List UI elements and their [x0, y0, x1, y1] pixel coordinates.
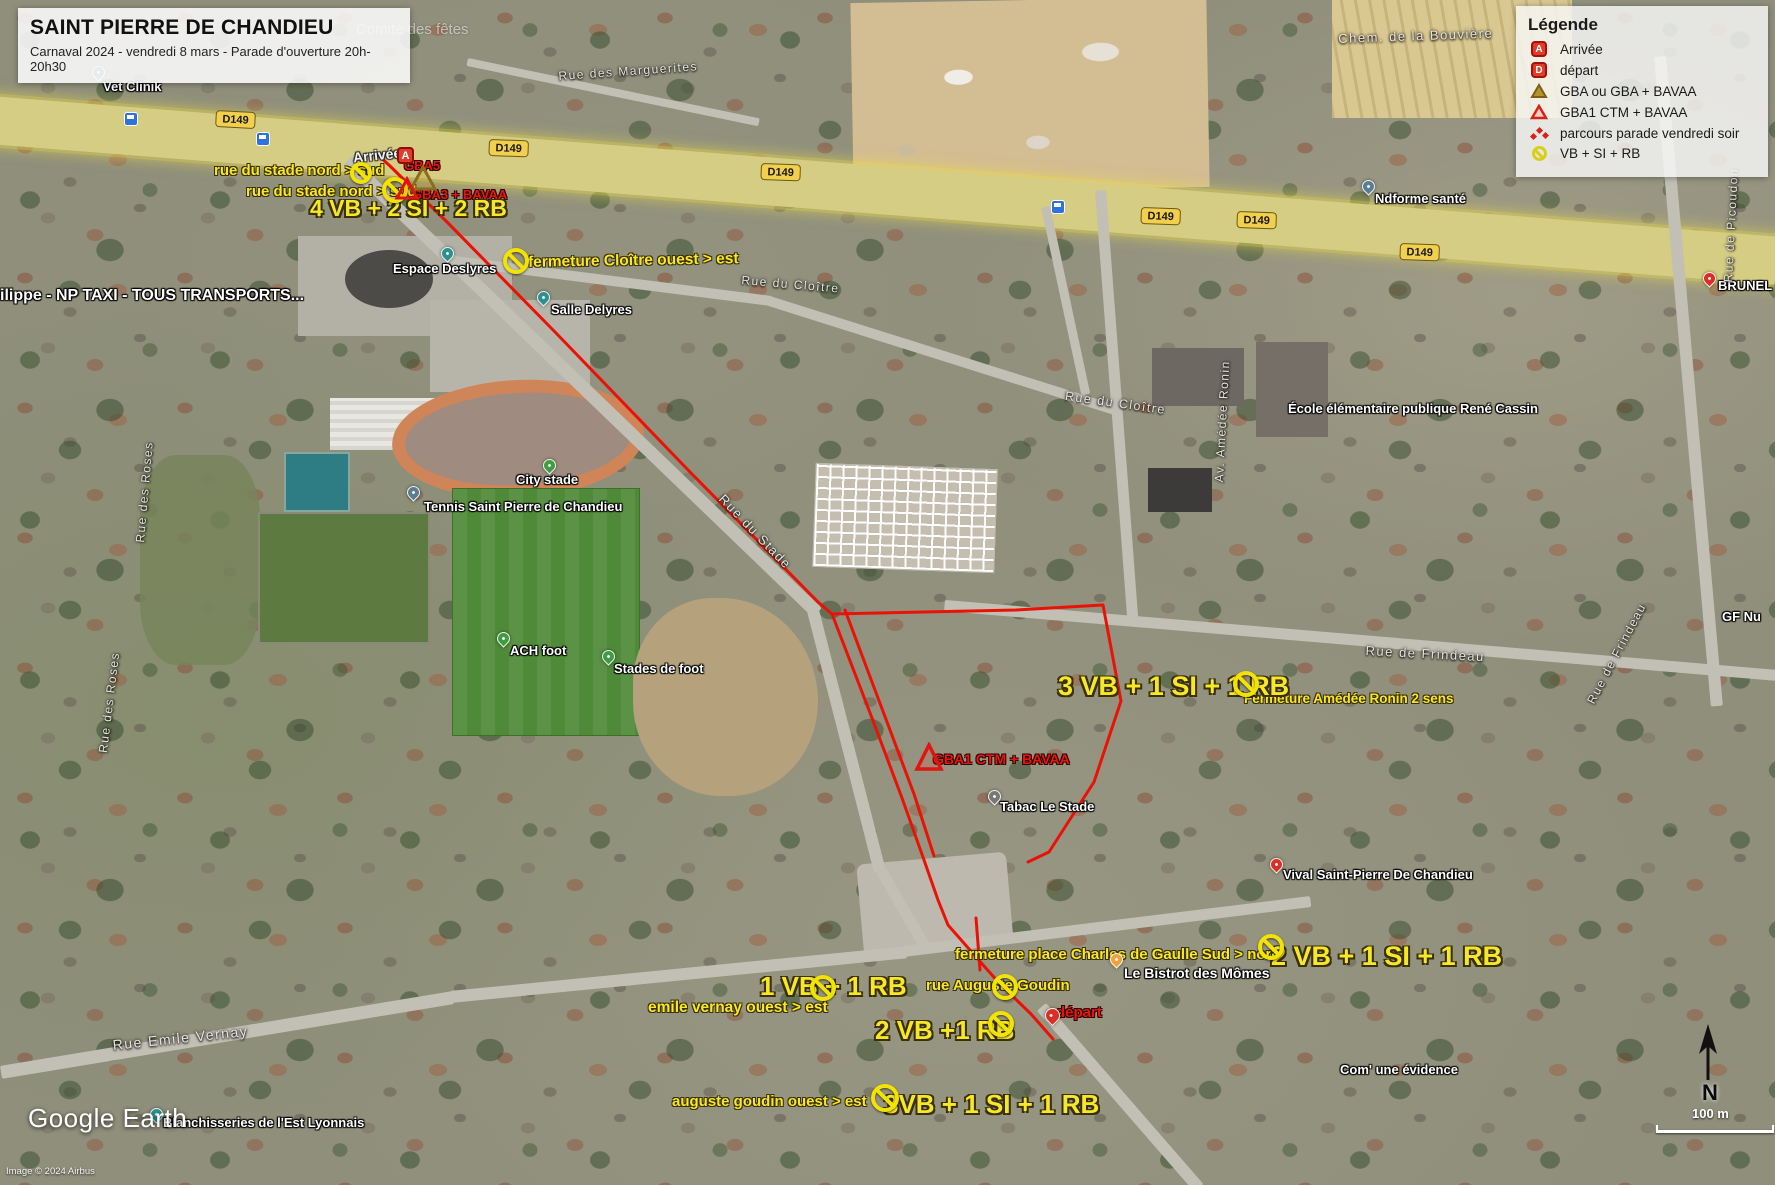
no-entry-icon	[871, 1084, 899, 1112]
closure-label: emile vernay ouest > est	[648, 999, 828, 1016]
bus-stop-icon[interactable]	[256, 132, 270, 146]
google-earth-map-canvas[interactable]: A Arrivée GBA5 GBA3 + BAVAA GBA1 CTM + B…	[0, 0, 1775, 1185]
espace-deslyres-building	[345, 250, 433, 308]
no-entry-icon	[350, 162, 372, 184]
map-title: SAINT PIERRE DE CHANDIEU	[30, 16, 398, 40]
map-subtitle: Carnaval 2024 - vendredi 8 mars - Parade…	[30, 44, 398, 74]
d149-shield: D149	[760, 163, 801, 181]
scale-label: 100 m	[1692, 1106, 1729, 1121]
count-label: 3VB + 1 SI + 1 RB	[884, 1090, 1099, 1119]
poi-label-espace-deslyres[interactable]: Espace Deslyres	[393, 262, 496, 276]
poi-label-ach-foot[interactable]: ACH foot	[510, 644, 566, 658]
depart-label: départ	[1056, 1005, 1102, 1022]
poi-label-com-evidence[interactable]: Com' une évidence	[1340, 1063, 1458, 1077]
poi-label-tennis[interactable]: Tennis Saint Pierre de Chandieu	[424, 500, 622, 514]
gba1-label: GBA1 CTM + BAVAA	[933, 752, 1070, 767]
school-building-2	[1256, 342, 1328, 437]
arrivee-legend-icon: A	[1531, 41, 1547, 57]
poi-label-ecole[interactable]: École élémentaire publique René Cassin	[1288, 402, 1538, 416]
legend-label: parcours parade vendredi soir	[1560, 126, 1739, 141]
legend-label: départ	[1560, 63, 1598, 78]
poi-label-taxi[interactable]: ilippe - NP TAXI - TOUS TRANSPORTS...	[0, 287, 304, 305]
bus-stop-icon[interactable]	[124, 112, 138, 126]
route-dots-icon	[1528, 125, 1550, 141]
poi-label-bistrot[interactable]: Le Bistrot des Mômes	[1124, 966, 1269, 981]
gba-triangle-red-icon	[394, 176, 420, 206]
poi-label-ndforme[interactable]: Ndforme santé	[1375, 192, 1466, 206]
legend-item-gba: GBA ou GBA + BAVAA	[1528, 83, 1756, 99]
legend-box: Légende A Arrivée D départ GBA ou GBA + …	[1516, 6, 1768, 177]
poi-label-stades-de-foot[interactable]: Stades de foot	[614, 662, 704, 676]
google-earth-logo: Google Earth	[28, 1103, 187, 1134]
poi-label-blanchisseries[interactable]: Blanchisseries de l'Est Lyonnais	[163, 1116, 364, 1130]
poi-label-tabac[interactable]: Tabac Le Stade	[1000, 800, 1094, 814]
no-entry-icon	[1258, 934, 1284, 960]
poi-label-salle-delyres[interactable]: Salle Delyres	[551, 303, 632, 317]
north-label: N	[1702, 1080, 1718, 1106]
closure-label: auguste goudin ouest > est	[672, 1094, 867, 1111]
legend-label: Arrivée	[1560, 42, 1603, 57]
d149-shield: D149	[1140, 207, 1181, 225]
no-entry-icon	[1233, 671, 1259, 697]
north-arrow-icon[interactable]	[1694, 1024, 1722, 1087]
legend-item-gba1: GBA1 CTM + BAVAA	[1528, 104, 1756, 120]
legend-title: Légende	[1528, 15, 1756, 35]
legend-item-depart: D départ	[1528, 62, 1756, 78]
d149-shield: D149	[215, 110, 256, 129]
football-pitch-2	[452, 488, 640, 736]
poi-label-vival[interactable]: Vival Saint-Pierre De Chandieu	[1283, 868, 1473, 882]
legend-label: VB + SI + RB	[1560, 146, 1640, 161]
tennis-courts	[284, 452, 350, 512]
legend-item-arrivee: A Arrivée	[1528, 41, 1756, 57]
d149-shield: D149	[1236, 211, 1277, 229]
arrivee-marker[interactable]: A	[397, 147, 414, 164]
title-box: SAINT PIERRE DE CHANDIEU Carnaval 2024 -…	[18, 8, 410, 83]
d149-shield: D149	[1399, 243, 1440, 261]
no-entry-legend-icon	[1532, 146, 1547, 161]
poi-label-city-stade[interactable]: City stade	[516, 473, 578, 487]
bus-stop-icon[interactable]	[1051, 200, 1065, 214]
legend-item-vb: VB + SI + RB	[1528, 146, 1756, 161]
gym-building	[1148, 468, 1212, 512]
gba1-triangle-red-icon	[914, 742, 944, 777]
cemetery	[812, 463, 998, 573]
legend-label: GBA ou GBA + BAVAA	[1560, 84, 1696, 99]
imagery-credit: Image © 2024 Airbus	[6, 1166, 95, 1177]
football-pitch-1	[258, 512, 430, 644]
gba1-triangle-red-icon	[1528, 104, 1550, 120]
no-entry-icon	[988, 1011, 1014, 1037]
scale-bar	[1656, 1130, 1774, 1133]
d149-shield: D149	[488, 139, 529, 157]
no-entry-icon	[992, 974, 1018, 1000]
legend-item-parcours: parcours parade vendredi soir	[1528, 125, 1756, 141]
no-entry-icon	[810, 975, 836, 1001]
no-entry-icon	[503, 248, 529, 274]
depart-legend-icon: D	[1531, 62, 1547, 78]
count-label: 2 VB + 1 SI + 1 RB	[1271, 942, 1502, 972]
legend-label: GBA1 CTM + BAVAA	[1560, 105, 1687, 120]
gba-triangle-olive-icon	[1528, 83, 1550, 99]
poi-label-gf[interactable]: GF Nu	[1722, 610, 1761, 624]
grass-area	[140, 455, 260, 665]
